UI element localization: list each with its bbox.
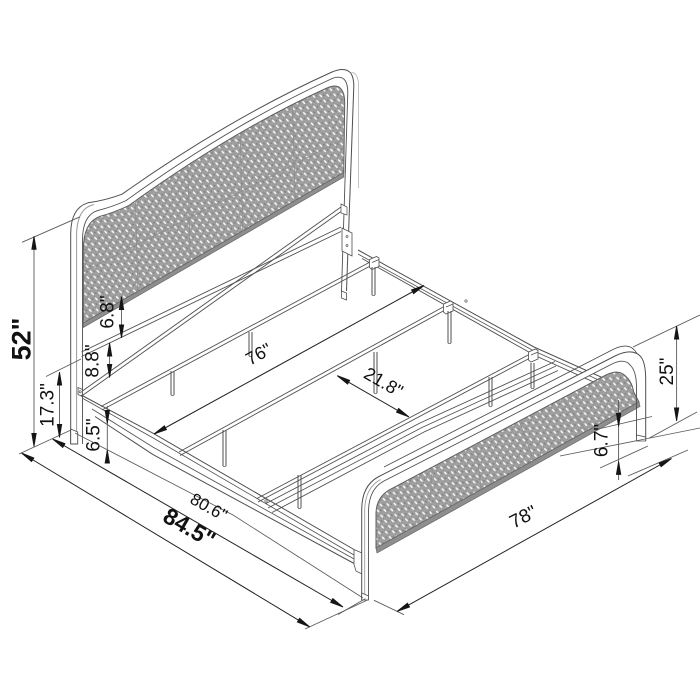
svg-text:21.8": 21.8" [361, 363, 407, 401]
svg-text:6.7": 6.7" [592, 424, 613, 457]
svg-text:76": 76" [242, 339, 275, 369]
svg-text:6.8": 6.8" [98, 295, 119, 328]
svg-text:25": 25" [657, 358, 678, 386]
svg-text:17.3": 17.3" [38, 383, 59, 427]
svg-text:8.8": 8.8" [83, 344, 104, 377]
svg-text:78": 78" [506, 502, 540, 533]
svg-text:52": 52" [7, 318, 37, 361]
